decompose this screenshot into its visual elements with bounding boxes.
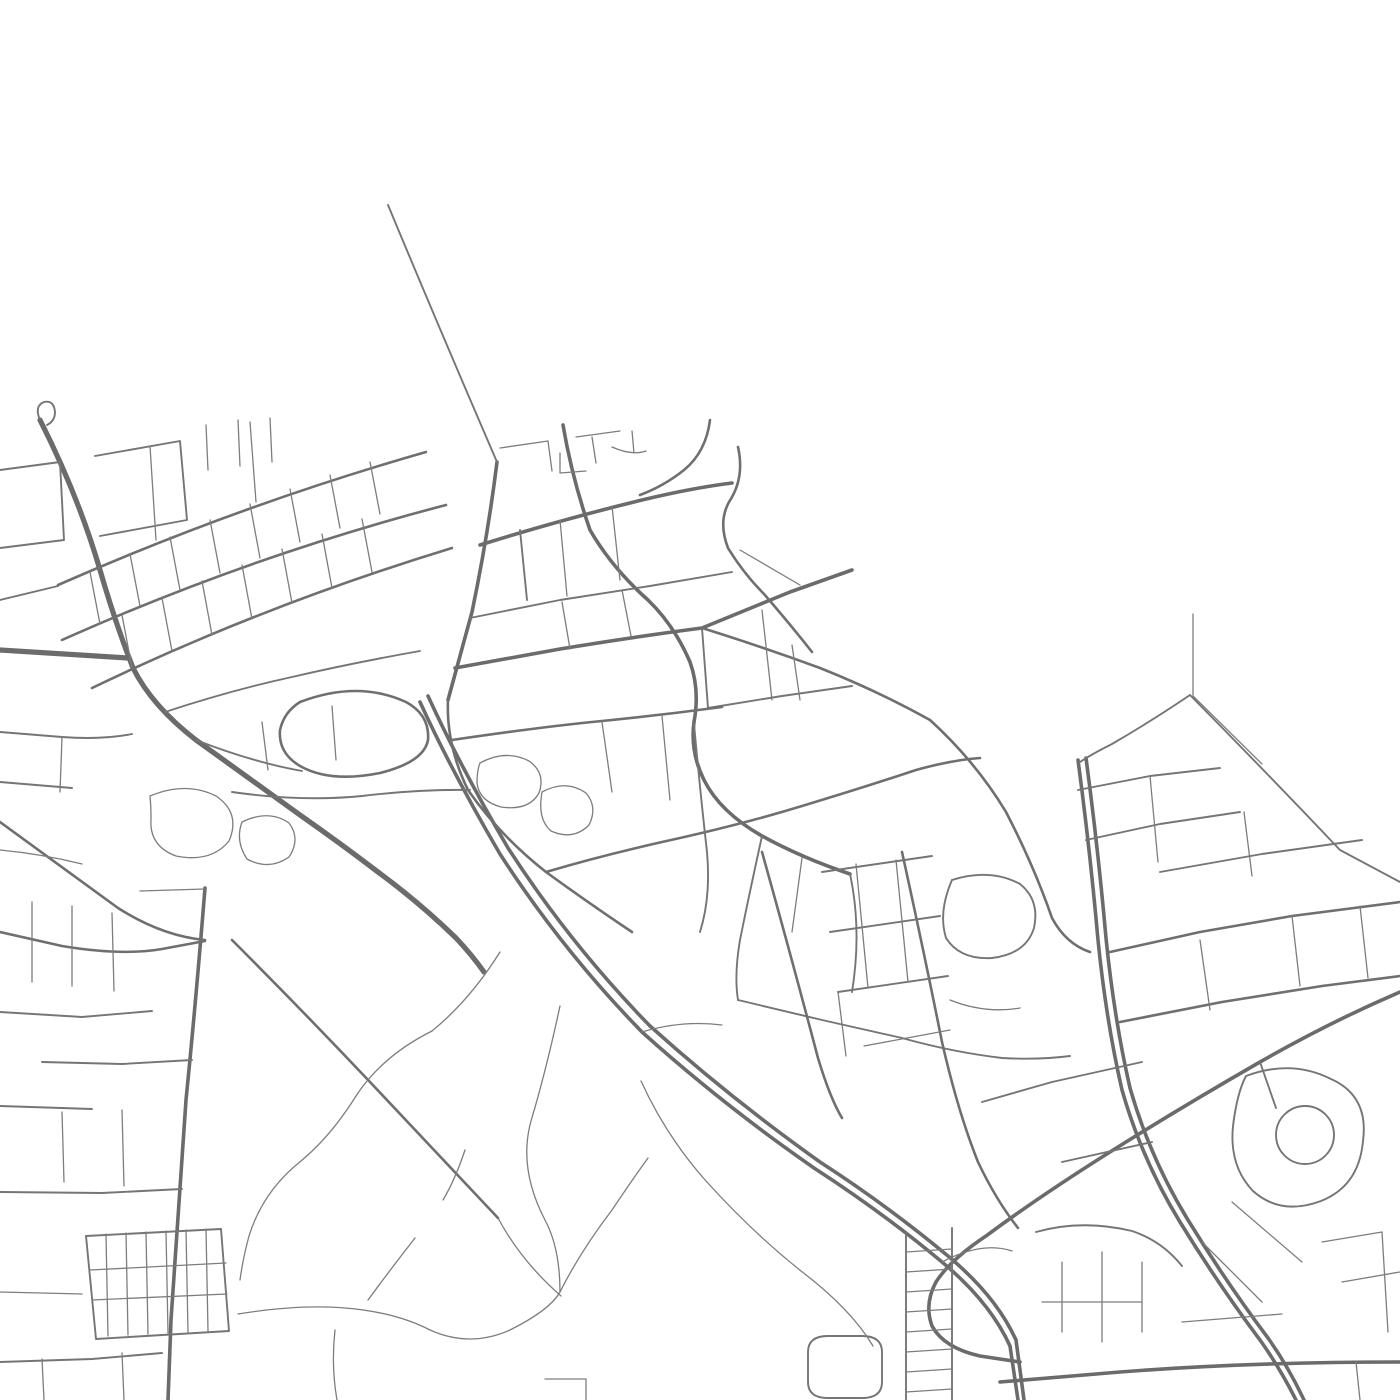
- road-path: [0, 586, 58, 600]
- road-path: [238, 420, 240, 466]
- road-path: [1190, 695, 1400, 882]
- road-path: [500, 441, 548, 448]
- road-path: [250, 422, 256, 502]
- road-path: [443, 1150, 465, 1200]
- road-path: [1182, 1314, 1282, 1322]
- road-path: [42, 1359, 44, 1400]
- road-path: [280, 691, 428, 777]
- road-path: [0, 462, 64, 548]
- road-path: [612, 447, 646, 453]
- road-path: [210, 520, 220, 573]
- road-path: [830, 916, 940, 932]
- road-path: [388, 205, 497, 462]
- road-path: [520, 530, 527, 600]
- road-path: [232, 940, 498, 1218]
- road-path: [602, 722, 612, 792]
- road-path: [1160, 840, 1362, 872]
- road-path: [238, 1158, 648, 1339]
- road-path: [140, 889, 205, 891]
- road-path: [0, 1011, 152, 1017]
- road-path: [146, 1232, 148, 1334]
- road-path: [1244, 812, 1252, 876]
- road-network: [0, 0, 1400, 1400]
- road-path: [982, 1082, 1052, 1102]
- road-path: [370, 462, 380, 514]
- road-path: [1193, 614, 1262, 764]
- road-path: [723, 447, 812, 652]
- road-path: [282, 549, 292, 603]
- road-path: [1080, 695, 1190, 762]
- road-path: [368, 1238, 415, 1300]
- road-path: [42, 1060, 192, 1064]
- road-path: [150, 789, 233, 858]
- road-path: [1360, 906, 1368, 978]
- road-path: [762, 610, 772, 700]
- road-path: [240, 952, 500, 1280]
- road-path: [1110, 902, 1400, 952]
- road-path: [470, 572, 732, 618]
- road-path: [122, 1353, 124, 1400]
- road-path: [206, 1229, 208, 1331]
- road-path: [906, 1349, 952, 1352]
- road-path: [186, 1230, 188, 1332]
- road-path: [943, 875, 1035, 958]
- road-path: [906, 1389, 952, 1392]
- road-path: [165, 651, 420, 712]
- road-path: [290, 489, 300, 542]
- road-path: [498, 1218, 561, 1296]
- road-path: [428, 696, 1024, 1400]
- road-path: [1342, 1272, 1400, 1282]
- road-path: [740, 550, 800, 585]
- road-path: [239, 816, 295, 865]
- road-path: [420, 702, 1018, 1400]
- road-path: [906, 1369, 952, 1372]
- road-path: [0, 1189, 182, 1193]
- road-path: [930, 720, 1090, 952]
- road-path: [0, 1353, 162, 1362]
- road-path: [792, 645, 800, 700]
- road-path: [130, 554, 140, 606]
- road-path: [541, 786, 593, 835]
- road-path: [1200, 940, 1210, 1010]
- road-path: [1000, 1362, 1400, 1382]
- road-path: [902, 852, 1018, 1228]
- road-path: [762, 852, 842, 1118]
- road-path: [0, 1106, 92, 1109]
- road-path: [126, 1233, 128, 1335]
- road-path: [708, 686, 852, 708]
- road-path: [902, 1038, 1070, 1059]
- road-path: [906, 1329, 952, 1332]
- road-path: [906, 1289, 952, 1292]
- road-path: [168, 888, 205, 1400]
- road-path: [40, 420, 484, 972]
- road-path: [1036, 1225, 1182, 1266]
- road-path: [850, 874, 857, 992]
- road-path: [166, 1231, 168, 1333]
- road-path: [0, 822, 205, 940]
- road-path: [477, 755, 541, 807]
- road-path: [527, 1006, 560, 1292]
- road-path: [1062, 1142, 1152, 1162]
- road-path: [162, 598, 172, 651]
- road-path: [563, 425, 850, 874]
- road-path: [0, 1292, 82, 1294]
- road-path: [640, 420, 710, 495]
- road-path: [694, 724, 708, 932]
- road-path: [452, 707, 722, 740]
- road-path: [1086, 812, 1240, 840]
- road-path: [1276, 1106, 1334, 1164]
- road-path: [250, 504, 260, 558]
- road-path: [480, 483, 732, 545]
- road-path: [106, 1234, 108, 1336]
- road-path: [242, 565, 252, 619]
- road-path: [60, 737, 62, 792]
- road-path: [90, 1263, 226, 1270]
- road-path: [92, 548, 452, 688]
- road-path: [0, 732, 132, 738]
- road-path: [330, 475, 340, 528]
- road-path: [822, 856, 932, 872]
- road-path: [270, 418, 272, 462]
- road-path: [576, 431, 620, 437]
- road-path: [90, 572, 100, 624]
- road-path: [548, 441, 552, 471]
- road-path: [333, 1330, 337, 1400]
- road-path: [62, 1112, 64, 1182]
- road-path: [1292, 916, 1300, 986]
- road-path: [0, 650, 128, 658]
- road-path: [641, 1081, 873, 1346]
- road-path: [1322, 1232, 1382, 1242]
- road-path: [592, 437, 596, 463]
- road-path: [736, 836, 762, 1000]
- road-path: [1150, 776, 1158, 862]
- road-path: [1078, 768, 1220, 790]
- road-path: [322, 534, 332, 588]
- road-path: [332, 706, 336, 760]
- road-path: [206, 425, 208, 470]
- road-path: [808, 1336, 882, 1398]
- map-viewport[interactable]: [0, 0, 1400, 1400]
- road-path: [0, 782, 72, 788]
- road-path: [738, 1000, 902, 1038]
- road-path: [170, 537, 180, 590]
- road-path: [545, 1379, 586, 1400]
- road-path: [122, 1110, 124, 1186]
- road-path: [702, 628, 930, 720]
- road-path: [1120, 976, 1400, 1022]
- road-path: [1232, 1202, 1302, 1262]
- road-path: [632, 431, 634, 453]
- road-path: [202, 581, 212, 635]
- road-path: [1078, 760, 1296, 1400]
- road-path: [662, 716, 670, 800]
- road-path: [702, 628, 708, 708]
- road-path: [792, 858, 802, 932]
- road-path: [622, 590, 631, 636]
- road-path: [560, 520, 567, 596]
- road-path: [950, 1000, 1020, 1010]
- road-path: [95, 441, 187, 536]
- road-path: [1356, 1362, 1360, 1400]
- road-path: [562, 602, 570, 649]
- road-path: [1232, 1068, 1363, 1206]
- road-path: [1382, 1232, 1388, 1332]
